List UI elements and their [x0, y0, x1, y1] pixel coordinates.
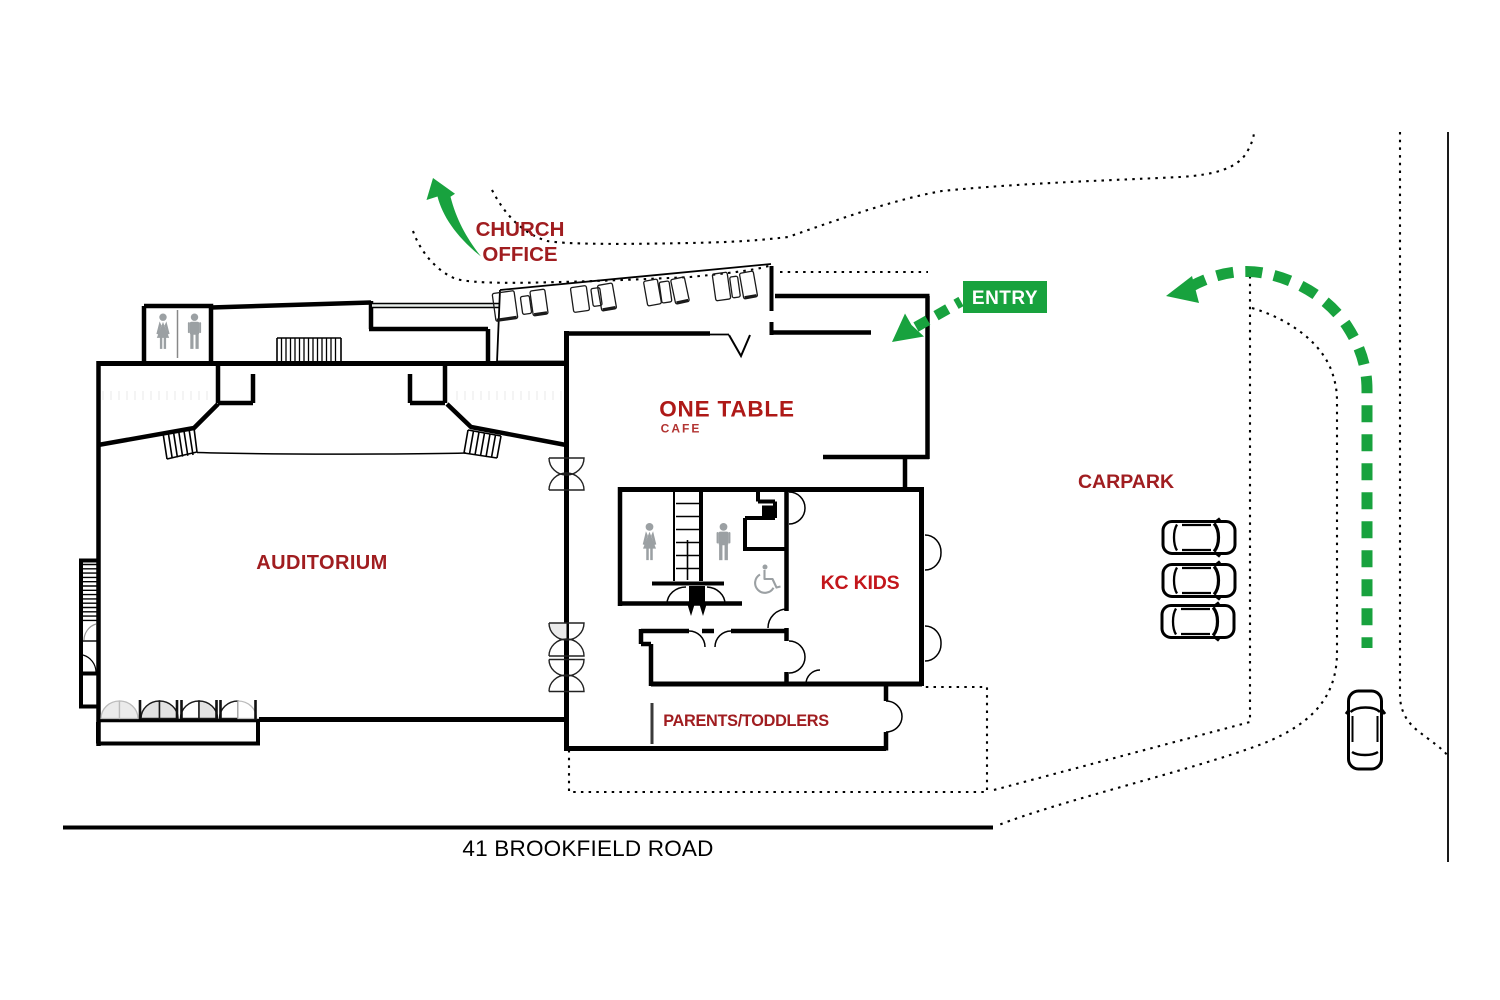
svg-text:CAFE: CAFE: [661, 422, 702, 436]
svg-text:OFFICE: OFFICE: [482, 243, 557, 266]
svg-text:41 BROOKFIELD ROAD: 41 BROOKFIELD ROAD: [462, 836, 713, 861]
svg-text:AUDITORIUM: AUDITORIUM: [256, 552, 387, 574]
svg-text:ENTRY: ENTRY: [972, 288, 1038, 309]
svg-text:CHURCH: CHURCH: [476, 218, 565, 241]
svg-text:PARENTS/TODDLERS: PARENTS/TODDLERS: [663, 712, 829, 730]
svg-text:ONE TABLE: ONE TABLE: [659, 397, 795, 422]
svg-text:CARPARK: CARPARK: [1078, 471, 1174, 493]
svg-text:KC KIDS: KC KIDS: [821, 572, 900, 594]
